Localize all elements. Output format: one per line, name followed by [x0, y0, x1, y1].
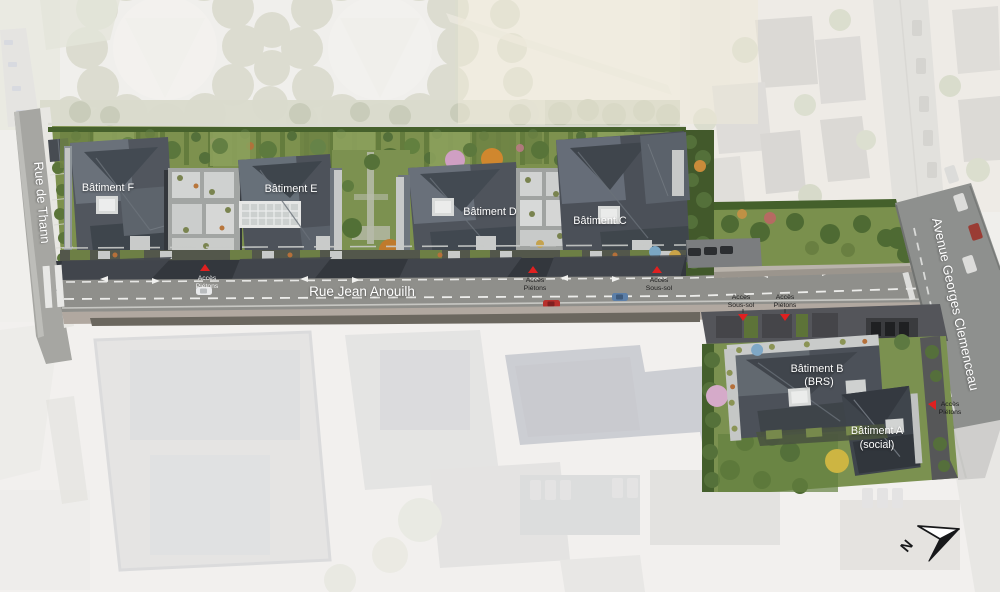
- svg-text:Accès: Accès: [650, 277, 669, 284]
- svg-text:Sous-sol: Sous-sol: [728, 302, 755, 309]
- svg-text:Accès: Accès: [198, 275, 217, 282]
- svg-text:Accès: Accès: [732, 294, 751, 301]
- svg-text:Bâtiment A: Bâtiment A: [851, 425, 904, 437]
- svg-text:Accès: Accès: [941, 401, 960, 408]
- svg-text:Accès: Accès: [776, 294, 795, 301]
- svg-text:Bâtiment D: Bâtiment D: [463, 206, 517, 218]
- svg-text:Piétons: Piétons: [196, 283, 219, 290]
- svg-text:Rue Jean Anouilh: Rue Jean Anouilh: [309, 284, 415, 299]
- svg-text:Bâtiment C: Bâtiment C: [573, 215, 627, 227]
- svg-text:Sous-sol: Sous-sol: [646, 285, 673, 292]
- svg-text:Piétons: Piétons: [524, 285, 547, 292]
- svg-text:(BRS): (BRS): [804, 376, 833, 388]
- svg-text:Bâtiment E: Bâtiment E: [265, 183, 318, 195]
- svg-text:Piétons: Piétons: [774, 302, 797, 309]
- svg-text:Bâtiment B: Bâtiment B: [791, 363, 844, 375]
- svg-text:Bâtiment F: Bâtiment F: [82, 182, 135, 194]
- svg-text:(social): (social): [860, 439, 895, 451]
- svg-text:Piétons: Piétons: [939, 409, 962, 416]
- svg-text:Accès: Accès: [526, 277, 545, 284]
